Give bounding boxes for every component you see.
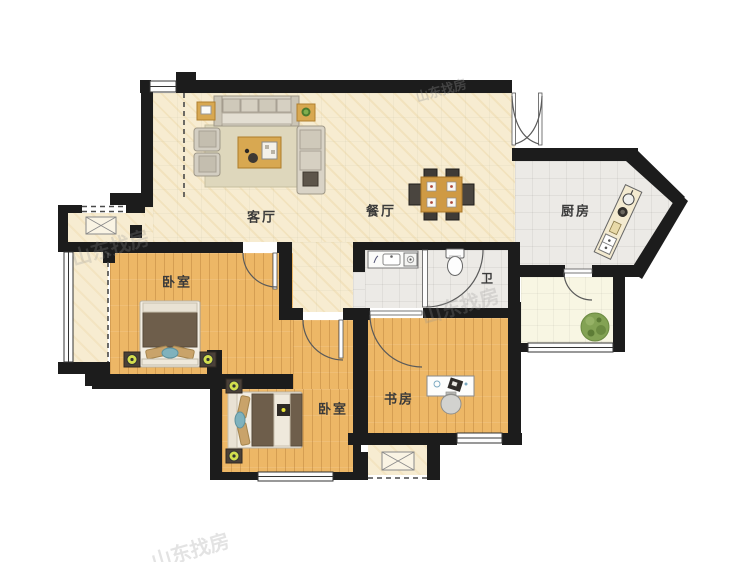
nightstand	[124, 352, 140, 367]
dining-chair	[461, 184, 474, 205]
ac-unit-south	[382, 452, 414, 470]
nightstand	[226, 449, 242, 463]
side-table-left	[197, 102, 215, 120]
label-bedroom-master: 卧室	[162, 272, 192, 291]
chaise-sofa	[297, 126, 325, 194]
entrance-double-door	[512, 93, 542, 145]
toilet	[446, 249, 464, 276]
coffee-table	[238, 137, 281, 168]
ac-unit-nw	[86, 217, 116, 234]
desk-chair	[441, 394, 461, 414]
floor-plan: 客厅 餐厅 厨房 卫 卧室 卧室 书房 山东找房 山东找房 山东找房 山东找房	[0, 0, 750, 562]
plant	[581, 313, 609, 341]
label-kitchen: 厨房	[561, 201, 591, 220]
study-door	[370, 311, 422, 367]
window-top-left	[150, 81, 176, 92]
window-west-balcony	[64, 252, 73, 362]
label-bathroom: 卫	[481, 270, 493, 287]
window-study	[457, 433, 502, 443]
sofa	[214, 96, 299, 126]
dining-chair	[409, 184, 422, 205]
study-furniture	[427, 376, 474, 414]
dining-furniture	[409, 169, 474, 220]
label-living-room: 客厅	[247, 207, 277, 226]
window-bedroom-second	[258, 472, 333, 481]
armchair-top	[194, 128, 220, 151]
bed-master	[140, 301, 200, 367]
washing-machine-icon	[404, 253, 417, 266]
bathroom-fixtures	[368, 249, 464, 276]
bedroom-master-furniture	[124, 301, 216, 367]
vanity-counter	[368, 251, 418, 268]
bedroom-second-door	[303, 320, 343, 360]
kitchen-counter	[594, 185, 642, 260]
label-dining-room: 餐厅	[366, 201, 396, 220]
nightstand	[200, 352, 216, 367]
plan-overlay	[0, 0, 750, 562]
desk	[427, 376, 474, 396]
window-kitchen-balcony	[528, 343, 613, 352]
bedroom-master-door	[243, 253, 277, 289]
walls	[58, 72, 688, 480]
kitchen-balcony-door	[564, 269, 592, 300]
living-room-furniture	[194, 96, 325, 194]
bed-second	[228, 392, 302, 448]
label-study: 书房	[384, 389, 414, 408]
nightstand	[226, 379, 242, 393]
armchair-bottom	[194, 153, 220, 176]
side-table-right	[297, 104, 315, 121]
bedroom-second-furniture	[226, 379, 302, 463]
label-bedroom-second: 卧室	[318, 399, 348, 418]
